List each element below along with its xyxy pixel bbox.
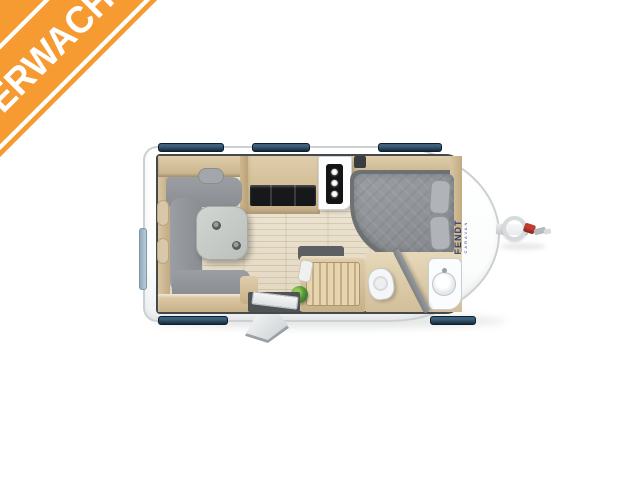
dining-table [196, 206, 248, 260]
rear-window-icon [139, 228, 147, 290]
pillow [429, 179, 451, 214]
pillow [429, 215, 451, 250]
lounge-headrest-cushion [198, 168, 224, 184]
backrest-cushion [157, 200, 169, 226]
wash-basin [432, 272, 456, 296]
hitch-ground-shadow [500, 243, 546, 250]
listing-photo-canvas: FENDT CARAVAN VERWACHT [0, 0, 640, 480]
backrest-cushion [157, 238, 169, 264]
jockey-wheel-tip [543, 228, 551, 235]
roof-window-icon [430, 316, 476, 325]
roof-vent-icon [354, 156, 366, 168]
cooktop [250, 185, 316, 206]
faucet-icon [442, 268, 447, 273]
roof-window-icon [158, 143, 224, 152]
stove-knob-icon [330, 168, 339, 177]
roof-window-icon [158, 316, 228, 325]
stove-knob-icon [330, 179, 339, 188]
cup-icon [212, 221, 221, 230]
brand-subtitle: CARAVAN [464, 210, 468, 264]
toilet-seat [373, 276, 388, 291]
cup-icon [232, 241, 241, 250]
roof-window-icon [378, 143, 442, 152]
sideboard-cushion [306, 262, 360, 306]
stove-knob-icon [330, 190, 339, 199]
brand-name: FENDT [454, 210, 463, 264]
brand-badge: FENDT CARAVAN [454, 210, 472, 264]
roof-window-icon [252, 143, 310, 152]
